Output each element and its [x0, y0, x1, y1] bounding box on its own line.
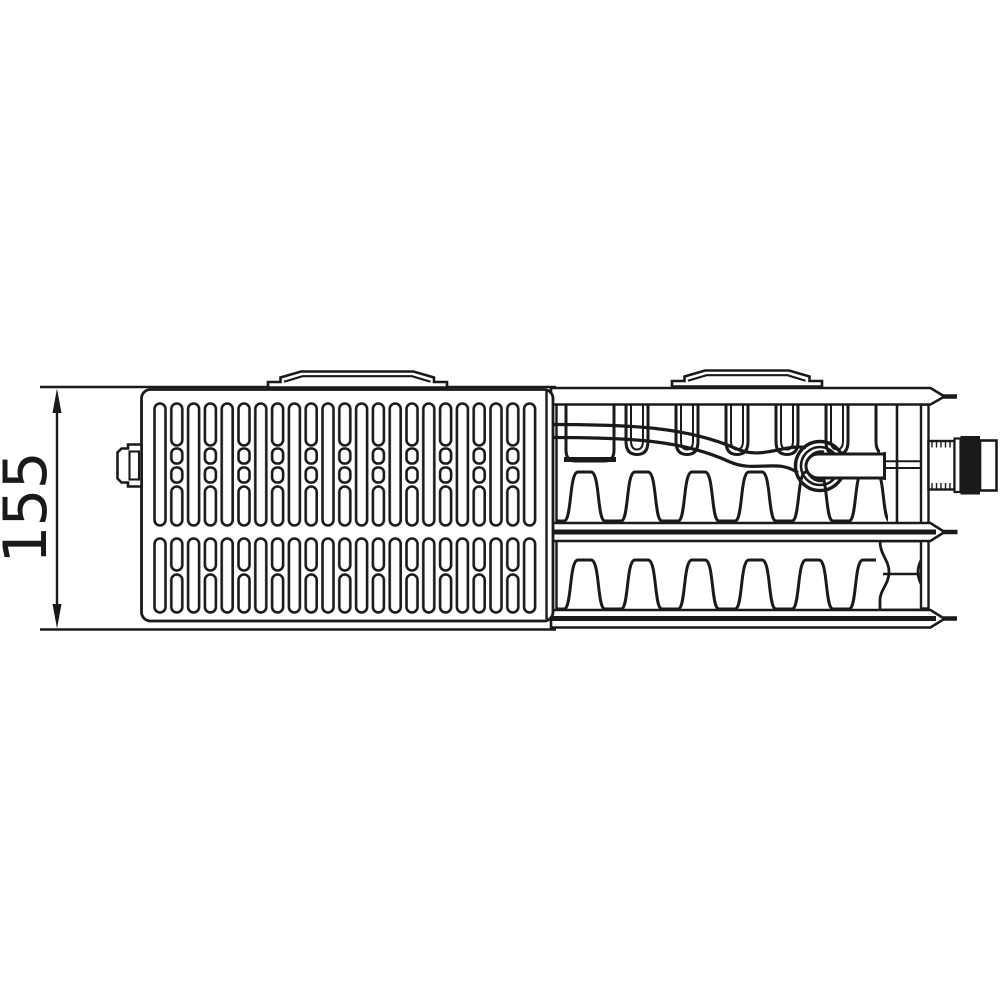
radiator-section-diagram: 155	[0, 0, 1000, 1000]
end-plate	[921, 405, 929, 609]
connection-fitting	[929, 436, 997, 495]
grille-slots-top	[153, 402, 539, 528]
valve-pipe-outlet	[806, 454, 885, 478]
arrow-up-icon	[53, 389, 62, 414]
top-plate	[551, 388, 945, 405]
fitting-washer	[955, 439, 961, 493]
fin-end-channel	[566, 405, 614, 461]
arrow-down-icon	[53, 604, 62, 629]
mounting-clips	[268, 371, 822, 388]
grille-panel	[118, 390, 554, 622]
threaded-nipple	[929, 441, 955, 490]
convector-fins-lower	[556, 556, 876, 610]
radiator-technical-drawing: 155	[0, 0, 1000, 1000]
convector-section	[556, 404, 927, 610]
fitting-cap	[980, 441, 997, 491]
grille-slots-bottom	[153, 537, 539, 614]
dimension-label: 155	[0, 452, 61, 564]
fitting-nut-block	[961, 436, 981, 495]
